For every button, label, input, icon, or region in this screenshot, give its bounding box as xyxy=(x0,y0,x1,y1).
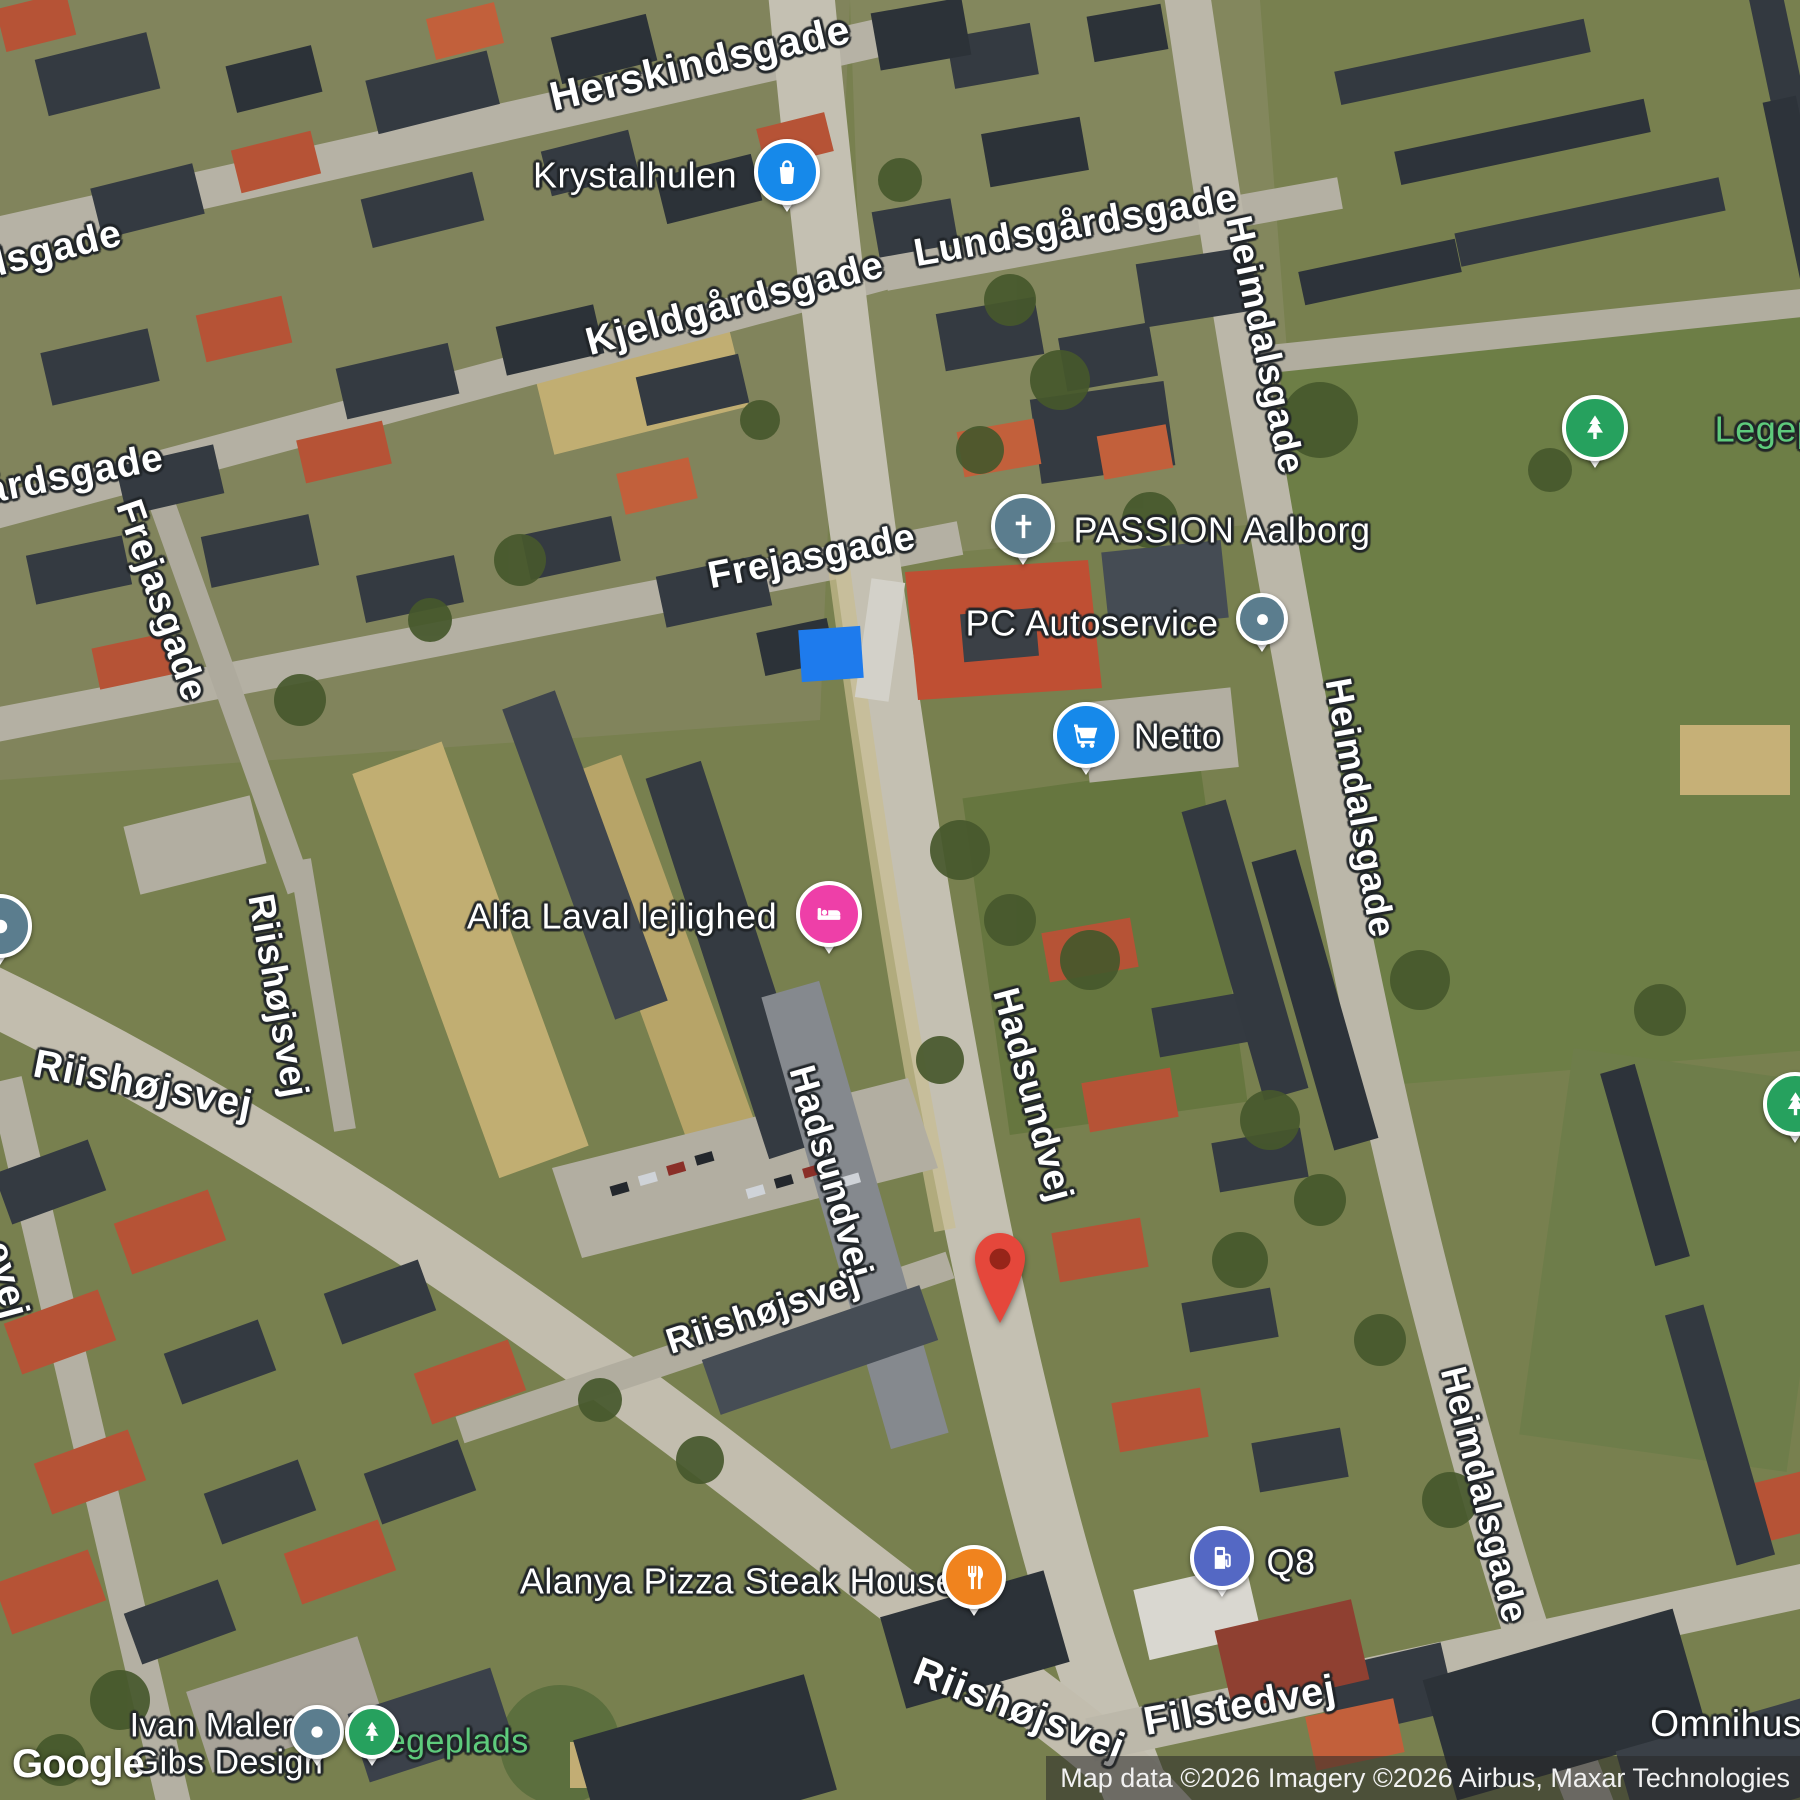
poi-label: Netto xyxy=(1134,718,1223,757)
poi-label: PASSION Aalborg xyxy=(1074,512,1371,551)
poi-label: PC Autoservice xyxy=(965,605,1218,644)
destination-pin[interactable] xyxy=(969,1231,1031,1332)
poi-label: Q8 xyxy=(1266,1544,1315,1583)
poi-label: Alanya Pizza Steak House xyxy=(520,1563,956,1602)
google-logo[interactable]: Google xyxy=(12,1742,144,1787)
poi-label: Krystalhulen xyxy=(533,157,737,196)
poi-label: Omnihus xyxy=(1650,1704,1800,1744)
map-canvas[interactable]: HerskindsgadeLundsgårdsgadeKjeldgårdsgad… xyxy=(0,0,1800,1800)
poi-label: Legeplads xyxy=(1715,411,1800,450)
map-attribution: Map data ©2026 Imagery ©2026 Airbus, Max… xyxy=(1046,1756,1800,1800)
poi-label: Alfa Laval lejlighed xyxy=(467,898,777,937)
